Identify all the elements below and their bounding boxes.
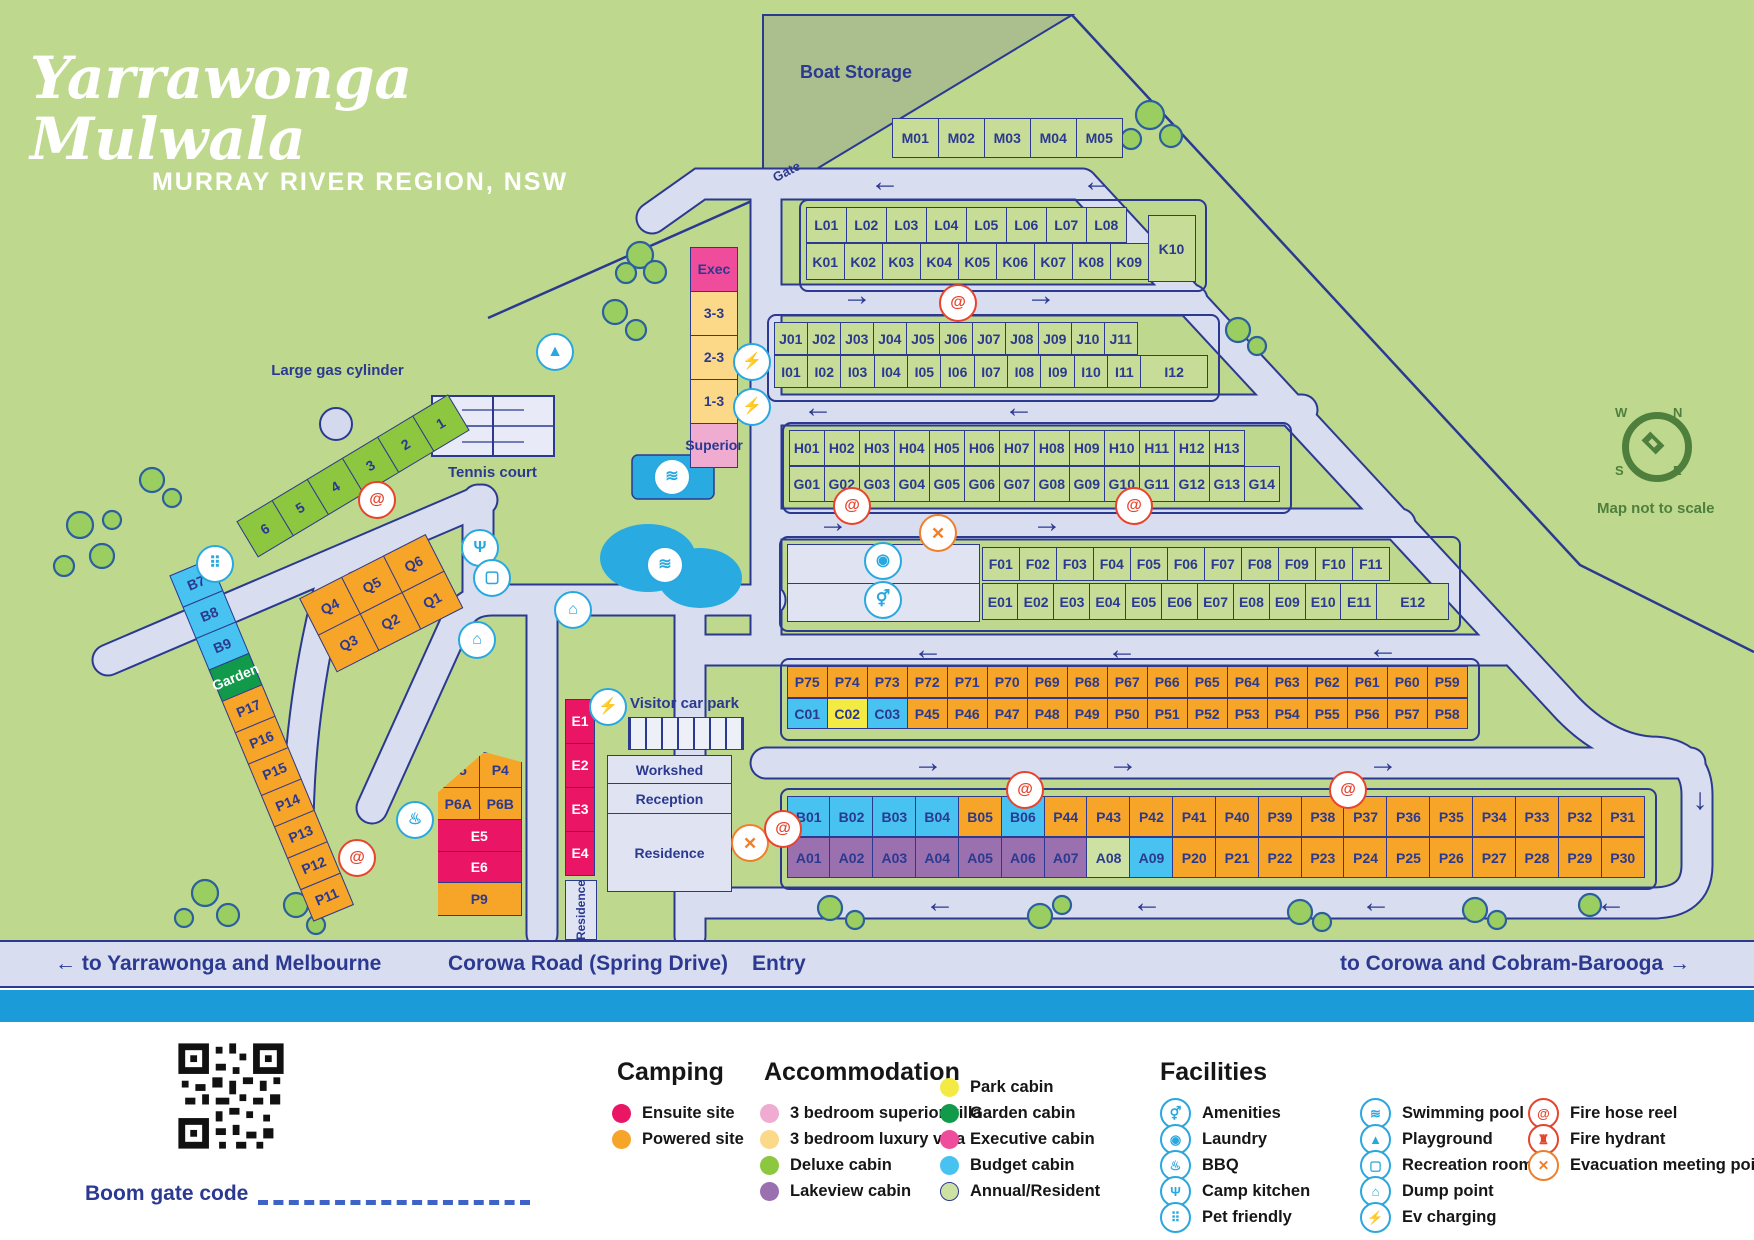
boat-storage-area — [763, 15, 1072, 194]
site-cell: P32 — [1558, 796, 1602, 837]
site-cell: G08 — [1034, 466, 1071, 502]
residence-label: Residence — [634, 845, 704, 861]
site-cell: A09 — [1129, 837, 1173, 878]
road-arrow: ↓ — [1693, 785, 1708, 815]
pet-friendly-icon — [1160, 1202, 1191, 1233]
site-cell: B04 — [915, 796, 959, 837]
site-cell: E05 — [1125, 583, 1162, 620]
evacuation-icon — [919, 514, 957, 552]
facilities-legend-col1: Amenities Laundry BBQ Camp kitchen Pet f… — [1160, 1104, 1310, 1227]
compass-needle — [1642, 432, 1665, 455]
site-cell: E2 — [565, 743, 595, 789]
legend-item: Amenities — [1160, 1104, 1310, 1123]
site-cell: H01 — [789, 430, 826, 466]
site-cell: J06 — [939, 322, 974, 355]
legend-item: Evacuation meeting point — [1528, 1156, 1754, 1175]
tree — [175, 880, 239, 927]
site-cell: P45 — [907, 698, 949, 729]
site-cell: P50 — [1107, 698, 1149, 729]
site-cell: I03 — [840, 355, 875, 388]
site-cell: C01 — [787, 698, 829, 729]
visitor-parking-stalls — [628, 717, 744, 750]
site-cell: P39 — [1258, 796, 1302, 837]
fire-hose-reel-icon — [358, 481, 396, 519]
road-arrow: ← — [1004, 393, 1034, 423]
site-cell: K09 — [1110, 243, 1150, 280]
site-cell: P20 — [1172, 837, 1216, 878]
legend-swatch — [760, 1130, 779, 1149]
site-cell: I12 — [1140, 355, 1208, 388]
site-cell: P60 — [1387, 666, 1429, 698]
site-cell: E07 — [1197, 583, 1234, 620]
site-cell: P51 — [1147, 698, 1189, 729]
site-cell: J08 — [1005, 322, 1040, 355]
site-cell: J07 — [972, 322, 1007, 355]
site-cell: H04 — [894, 430, 931, 466]
i-sites-row: I01I02I03I04I05I06I07I08I09I10I11I12 — [775, 355, 1208, 388]
site-cell: E08 — [1233, 583, 1270, 620]
legend-item: Swimming pool — [1360, 1104, 1533, 1123]
site-cell: P27 — [1472, 837, 1516, 878]
site-cell: P59 — [1427, 666, 1469, 698]
site-cell: H12 — [1174, 430, 1211, 466]
site-cell: P68 — [1067, 666, 1109, 698]
qr-code — [175, 1040, 287, 1152]
site-cell: F10 — [1315, 547, 1354, 581]
road-east-label: to Corowa and Cobram-Barooga → — [1340, 952, 1690, 976]
c-p-sites-row: C01C02C03P45P46P47P48P49P50P51P52P53P54P… — [788, 698, 1468, 729]
legend-item: Camp kitchen — [1160, 1182, 1310, 1201]
site-cell: I04 — [874, 355, 909, 388]
f-sites-row: F01F02F03F04F05F06F07F08F09F10F11 — [983, 547, 1390, 581]
site-cell: K07 — [1034, 243, 1074, 280]
site-cell: H05 — [929, 430, 966, 466]
ev-charging-icon — [733, 343, 771, 381]
legend-swatch — [612, 1104, 631, 1123]
legend-item: Annual/Resident — [940, 1182, 1100, 1201]
road-arrow: ← — [1107, 635, 1137, 665]
site-cell: H07 — [999, 430, 1036, 466]
facilities-header: Facilities — [1160, 1058, 1267, 1087]
site-cell: E5 — [437, 819, 523, 852]
legend-item: Laundry — [1160, 1130, 1310, 1149]
site-cell: 2-3 — [690, 335, 738, 381]
compass-e: E — [1673, 463, 1682, 478]
site-cell: A04 — [915, 837, 959, 878]
residence-strip-label: Residence — [574, 880, 588, 940]
site-cell: B02 — [829, 796, 873, 837]
site-cell: P64 — [1227, 666, 1269, 698]
site-cell: P6A — [437, 787, 481, 821]
boom-gate-code-line — [258, 1200, 530, 1205]
site-cell: M04 — [1030, 118, 1078, 158]
site-cell: A05 — [958, 837, 1002, 878]
site-cell: P43 — [1086, 796, 1130, 837]
legend-label: Garden cabin — [970, 1104, 1075, 1123]
site-cell: P46 — [947, 698, 989, 729]
facilities-legend-col3: Fire hose reel Fire hydrant Evacuation m… — [1528, 1104, 1754, 1175]
site-cell: I08 — [1007, 355, 1042, 388]
legend-item: Playground — [1360, 1130, 1533, 1149]
site-cell: F01 — [982, 547, 1021, 581]
site-cell: Superior — [690, 423, 738, 469]
legend-label: Ensuite site — [642, 1104, 735, 1123]
road-arrow: ← — [1132, 888, 1162, 918]
legend-swatch — [760, 1156, 779, 1175]
site-cell: K01 — [806, 243, 846, 280]
site-cell: J04 — [873, 322, 908, 355]
park-map-page: Yarrawonga Mulwala MURRAY RIVER REGION, … — [0, 0, 1754, 1240]
site-cell: M05 — [1076, 118, 1124, 158]
site-cell: E3 — [565, 787, 595, 833]
legend-item: Recreation room — [1360, 1156, 1533, 1175]
site-cell: P41 — [1172, 796, 1216, 837]
site-cell: C03 — [867, 698, 909, 729]
compass-w: W — [1615, 405, 1627, 420]
site-cell: P29 — [1558, 837, 1602, 878]
site-cell: P24 — [1343, 837, 1387, 878]
j-sites-row: J01J02J03J04J05J06J07J08J09J10J11 — [775, 322, 1138, 355]
site-cell: P57 — [1387, 698, 1429, 729]
dump-point-icon — [554, 591, 592, 629]
site-cell: P66 — [1147, 666, 1189, 698]
site-cell: H11 — [1139, 430, 1176, 466]
legend-item: Budget cabin — [940, 1156, 1100, 1175]
site-cell: F11 — [1352, 547, 1391, 581]
tree — [616, 242, 666, 283]
site-cell: P34 — [1472, 796, 1516, 837]
site-cell: G07 — [999, 466, 1036, 502]
site-cell: 3-3 — [690, 291, 738, 337]
site-cell: F07 — [1204, 547, 1243, 581]
road-arrow: ← — [1368, 634, 1398, 664]
legend-label: Deluxe cabin — [790, 1156, 892, 1175]
road-arrow: → — [913, 748, 943, 778]
site-cell: M02 — [938, 118, 986, 158]
ev-charging-icon — [733, 388, 771, 426]
legend-label: Fire hydrant — [1570, 1130, 1665, 1149]
gas-cylinder-label: Large gas cylinder — [265, 362, 410, 379]
legend-label: Playground — [1402, 1130, 1493, 1149]
site-cell: A02 — [829, 837, 873, 878]
site-cell: J03 — [840, 322, 875, 355]
compass-rose: N W S E — [1622, 412, 1692, 482]
site-cell: P9 — [437, 882, 523, 916]
road-arrow: → — [842, 281, 872, 311]
ensuite-strip: E1E2E3E4 — [565, 700, 595, 876]
legend-swatch — [940, 1182, 959, 1201]
site-cell: L08 — [1086, 207, 1128, 243]
site-cell: L02 — [846, 207, 888, 243]
site-cell: J11 — [1104, 322, 1139, 355]
site-cell: G12 — [1174, 466, 1211, 502]
site-cell: 1-3 — [690, 379, 738, 425]
site-cell: P58 — [1427, 698, 1469, 729]
legend-item: Executive cabin — [940, 1130, 1100, 1149]
tree — [140, 468, 181, 507]
site-cell: E11 — [1340, 583, 1377, 620]
accommodation-header: Accommodation — [764, 1058, 960, 1087]
site-cell: P53 — [1227, 698, 1269, 729]
fire-hose-reel-icon — [764, 810, 802, 848]
bbq-icon — [396, 801, 434, 839]
residence-building: Residence — [607, 813, 732, 892]
legend-swatch — [760, 1182, 779, 1201]
legend-label: Dump point — [1402, 1182, 1494, 1201]
site-cell: L03 — [886, 207, 928, 243]
tree — [54, 511, 121, 576]
compass-s: S — [1615, 463, 1624, 478]
site-cell: F03 — [1056, 547, 1095, 581]
site-cell: H09 — [1069, 430, 1106, 466]
legend-label: Laundry — [1202, 1130, 1267, 1149]
site-cell: P22 — [1258, 837, 1302, 878]
a-p-sites-row: A01A02A03A04A05A06A07A08A09P20P21P22P23P… — [788, 837, 1645, 878]
laundry-icon — [864, 542, 902, 580]
swimming-pool-icon — [646, 546, 684, 584]
tree — [1121, 101, 1182, 149]
site-cell: I11 — [1107, 355, 1142, 388]
site-cell: Exec — [690, 247, 738, 293]
site-cell: P30 — [1601, 837, 1645, 878]
fire-hose-reel-icon — [1329, 771, 1367, 809]
road-arrow: ← — [1082, 167, 1112, 197]
legend-item: Pet friendly — [1160, 1208, 1310, 1227]
site-cell: B05 — [958, 796, 1002, 837]
site-cell: E06 — [1161, 583, 1198, 620]
site-cell: L04 — [926, 207, 968, 243]
site-cell: P25 — [1386, 837, 1430, 878]
site-cell: J02 — [807, 322, 842, 355]
site-cell: P23 — [1301, 837, 1345, 878]
fire-hose-reel-icon — [939, 284, 977, 322]
site-cell: P69 — [1027, 666, 1069, 698]
site-cell: P44 — [1044, 796, 1088, 837]
visitor-car-park-label: Visitor car park — [630, 695, 739, 712]
site-cell: P61 — [1347, 666, 1389, 698]
swimming-pool-icon — [653, 458, 691, 496]
site-cell: P49 — [1067, 698, 1109, 729]
amenities-icon — [864, 581, 902, 619]
site-cell: E01 — [982, 583, 1019, 620]
site-cell: P71 — [947, 666, 989, 698]
site-cell: C02 — [827, 698, 869, 729]
site-cell: G01 — [789, 466, 826, 502]
villa-strip: Exec3-32-31-3Superior — [690, 248, 738, 468]
site-cell: K02 — [844, 243, 884, 280]
site-cell: G05 — [929, 466, 966, 502]
site-cell: L07 — [1046, 207, 1088, 243]
site-cell: P62 — [1307, 666, 1349, 698]
site-cell: P67 — [1107, 666, 1149, 698]
recreation-room-icon — [473, 559, 511, 597]
site-cell: M03 — [984, 118, 1032, 158]
site-cell: F09 — [1278, 547, 1317, 581]
workshed-building: Workshed — [607, 755, 732, 785]
site-cell: P47 — [987, 698, 1029, 729]
site-cell: L06 — [1006, 207, 1048, 243]
site-cell: E02 — [1017, 583, 1054, 620]
legend-item: Powered site — [612, 1130, 744, 1149]
legend-item: Fire hose reel — [1528, 1104, 1754, 1123]
site-cell: P26 — [1429, 837, 1473, 878]
site-cell: P40 — [1215, 796, 1259, 837]
site-cell: K03 — [882, 243, 922, 280]
site-cell: E6 — [437, 851, 523, 884]
playground-icon — [536, 333, 574, 371]
site-cell: I07 — [974, 355, 1009, 388]
legend-item: Fire hydrant — [1528, 1130, 1754, 1149]
legend-label: Budget cabin — [970, 1156, 1075, 1175]
legend-label: Powered site — [642, 1130, 744, 1149]
site-cell: P72 — [907, 666, 949, 698]
road-arrow: → — [1368, 748, 1398, 778]
legend-swatch — [940, 1130, 959, 1149]
legend-label: Park cabin — [970, 1078, 1053, 1097]
site-cell: P56 — [1347, 698, 1389, 729]
site-cell: P55 — [1307, 698, 1349, 729]
site-cell: P42 — [1129, 796, 1173, 837]
site-cell: G14 — [1244, 466, 1281, 502]
site-cell: J10 — [1071, 322, 1106, 355]
legend-swatch — [940, 1156, 959, 1175]
facilities-legend-col2: Swimming pool Playground Recreation room… — [1360, 1104, 1533, 1227]
legend-item: BBQ — [1160, 1156, 1310, 1175]
site-cell: F05 — [1130, 547, 1169, 581]
road-arrow: ← — [803, 393, 833, 423]
road-arrow: → — [1108, 748, 1138, 778]
legend-area: Scan this QR code to view all the inform… — [0, 1022, 1754, 1240]
compass-n: N — [1673, 405, 1682, 420]
site-cell: F06 — [1167, 547, 1206, 581]
site-cell: P36 — [1386, 796, 1430, 837]
site-cell: B03 — [872, 796, 916, 837]
h-sites-row: H01H02H03H04H05H06H07H08H09H10H11H12H13 — [790, 430, 1245, 466]
site-cell: G06 — [964, 466, 1001, 502]
site-cell: I06 — [940, 355, 975, 388]
site-cell: A03 — [872, 837, 916, 878]
camping-legend: Ensuite site Powered site — [612, 1104, 744, 1149]
legend-label: Recreation room — [1402, 1156, 1533, 1175]
gas-cylinder — [320, 408, 352, 440]
site-cell: I05 — [907, 355, 942, 388]
site-cell: P28 — [1515, 837, 1559, 878]
site-cell: P31 — [1601, 796, 1645, 837]
site-cell: P73 — [867, 666, 909, 698]
site-cell: P35 — [1429, 796, 1473, 837]
legend-label: Amenities — [1202, 1104, 1281, 1123]
site-cell: P65 — [1187, 666, 1229, 698]
legend-swatch — [940, 1078, 959, 1097]
site-cell: E03 — [1053, 583, 1090, 620]
site-cell-k10: K10 — [1148, 215, 1196, 282]
site-cell: G04 — [894, 466, 931, 502]
site-cell: K05 — [958, 243, 998, 280]
legend-swatch — [760, 1104, 779, 1123]
legend-swatch — [940, 1104, 959, 1123]
legend-label: Fire hose reel — [1570, 1104, 1677, 1123]
site-cell: A08 — [1086, 837, 1130, 878]
e-sites-row: E01E02E03E04E05E06E07E08E09E10E11E12 — [983, 583, 1449, 620]
site-cell: H02 — [824, 430, 861, 466]
site-cell: H10 — [1104, 430, 1141, 466]
site-cell: P74 — [827, 666, 869, 698]
site-cell: J05 — [906, 322, 941, 355]
corowa-road-band: ← to Yarrawonga and Melbourne Corowa Roa… — [0, 940, 1754, 988]
site-cell: E4 — [565, 831, 595, 877]
residence-strip: Residence — [565, 880, 597, 940]
site-cell: L01 — [806, 207, 848, 243]
fire-hose-reel-icon — [338, 839, 376, 877]
fire-hose-reel-icon — [1115, 487, 1153, 525]
site-cell: P75 — [787, 666, 829, 698]
legend-label: Evacuation meeting point — [1570, 1156, 1754, 1175]
site-cell: P52 — [1187, 698, 1229, 729]
legend-label: 3 bedroom luxury villa — [790, 1130, 965, 1149]
legend-label: Executive cabin — [970, 1130, 1095, 1149]
not-to-scale-label: Map not to scale — [1597, 500, 1715, 517]
site-cell: P6B — [479, 787, 523, 821]
site-cell: P48 — [1027, 698, 1069, 729]
site-cell: H08 — [1034, 430, 1071, 466]
site-cell: F02 — [1019, 547, 1058, 581]
road-arrow: ← — [1361, 888, 1391, 918]
site-cell: J09 — [1038, 322, 1073, 355]
site-cell: F04 — [1093, 547, 1132, 581]
dump-point-icon — [458, 621, 496, 659]
site-cell: K08 — [1072, 243, 1112, 280]
tennis-court-label: Tennis court — [448, 464, 537, 481]
site-cell: H06 — [964, 430, 1001, 466]
legend-label: BBQ — [1202, 1156, 1239, 1175]
legend-item: Ev charging — [1360, 1208, 1533, 1227]
road-arrow: → — [1026, 281, 1056, 311]
fire-hose-reel-icon — [1006, 771, 1044, 809]
site-cell: L05 — [966, 207, 1008, 243]
camping-header: Camping — [617, 1058, 724, 1087]
m-sites-row: M01M02M03M04M05 — [893, 118, 1123, 158]
park-subtitle: MURRAY RIVER REGION, NSW — [150, 168, 570, 197]
site-cell: K04 — [920, 243, 960, 280]
site-cell: I01 — [774, 355, 809, 388]
legend-label: Camp kitchen — [1202, 1182, 1310, 1201]
l-sites-row: L01L02L03L04L05L06L07L08 — [807, 207, 1127, 243]
legend-label: Swimming pool — [1402, 1104, 1524, 1123]
site-cell: E04 — [1089, 583, 1126, 620]
road-arrow: ← — [1596, 888, 1626, 918]
legend-item: Garden cabin — [940, 1104, 1100, 1123]
road-west-label: ← to Yarrawonga and Melbourne — [55, 952, 381, 976]
site-cell: P54 — [1267, 698, 1309, 729]
site-cell: E12 — [1376, 583, 1449, 620]
site-cell: A07 — [1044, 837, 1088, 878]
road-arrow: → — [1032, 508, 1062, 538]
workshed-label: Workshed — [636, 762, 703, 778]
accommodation-legend-col2: Park cabin Garden cabin Executive cabin … — [940, 1078, 1100, 1201]
tree — [603, 300, 646, 340]
river-stripe — [0, 990, 1754, 1022]
site-cell: H13 — [1209, 430, 1246, 466]
entry-label: Entry — [752, 952, 806, 976]
legend-label: Pet friendly — [1202, 1208, 1292, 1227]
site-cell: M01 — [892, 118, 940, 158]
road-arrow: → — [818, 508, 848, 538]
road-arrow: ← — [925, 888, 955, 918]
site-cell: I10 — [1074, 355, 1109, 388]
legend-swatch — [612, 1130, 631, 1149]
site-cell: I02 — [807, 355, 842, 388]
site-cell: I09 — [1040, 355, 1075, 388]
